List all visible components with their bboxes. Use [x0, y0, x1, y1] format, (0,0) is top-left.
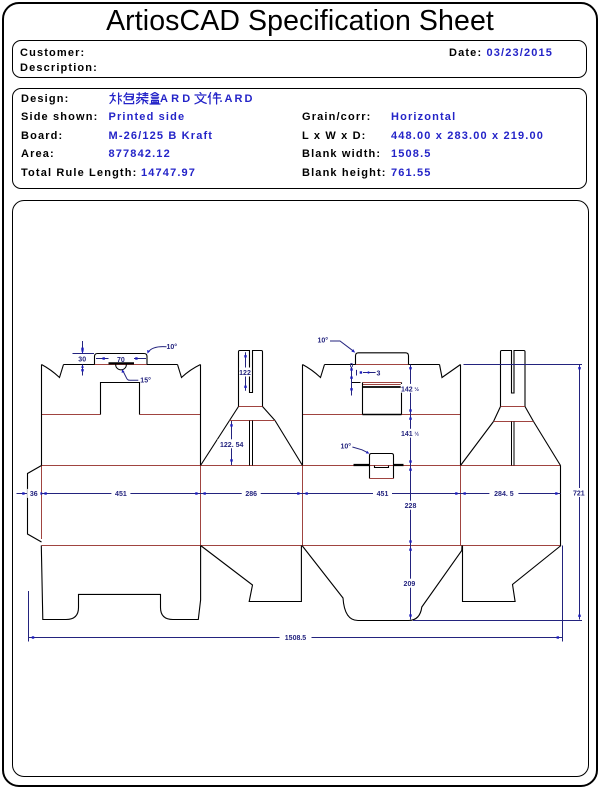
svg-text:286: 286	[245, 491, 257, 498]
svg-text:142 ½: 142 ½	[401, 386, 419, 394]
svg-text:451: 451	[115, 491, 127, 498]
svg-text:284. 5: 284. 5	[494, 491, 514, 498]
svg-text:141 ½: 141 ½	[401, 431, 419, 439]
svg-text:721: 721	[573, 490, 585, 497]
svg-text:209: 209	[404, 581, 416, 588]
svg-text:36: 36	[30, 491, 38, 498]
svg-text:10°: 10°	[341, 443, 352, 451]
svg-text:30: 30	[78, 356, 86, 363]
svg-text:122. 54: 122. 54	[220, 442, 243, 449]
svg-text:15°: 15°	[140, 377, 151, 385]
svg-text:228: 228	[405, 503, 417, 510]
svg-text:1508.5: 1508.5	[285, 635, 307, 642]
svg-text:3: 3	[376, 371, 380, 378]
svg-text:451: 451	[377, 491, 389, 498]
svg-text:10°: 10°	[167, 343, 178, 351]
svg-text:10°: 10°	[318, 337, 329, 345]
svg-text:70: 70	[117, 357, 125, 364]
svg-text:122: 122	[239, 370, 251, 377]
